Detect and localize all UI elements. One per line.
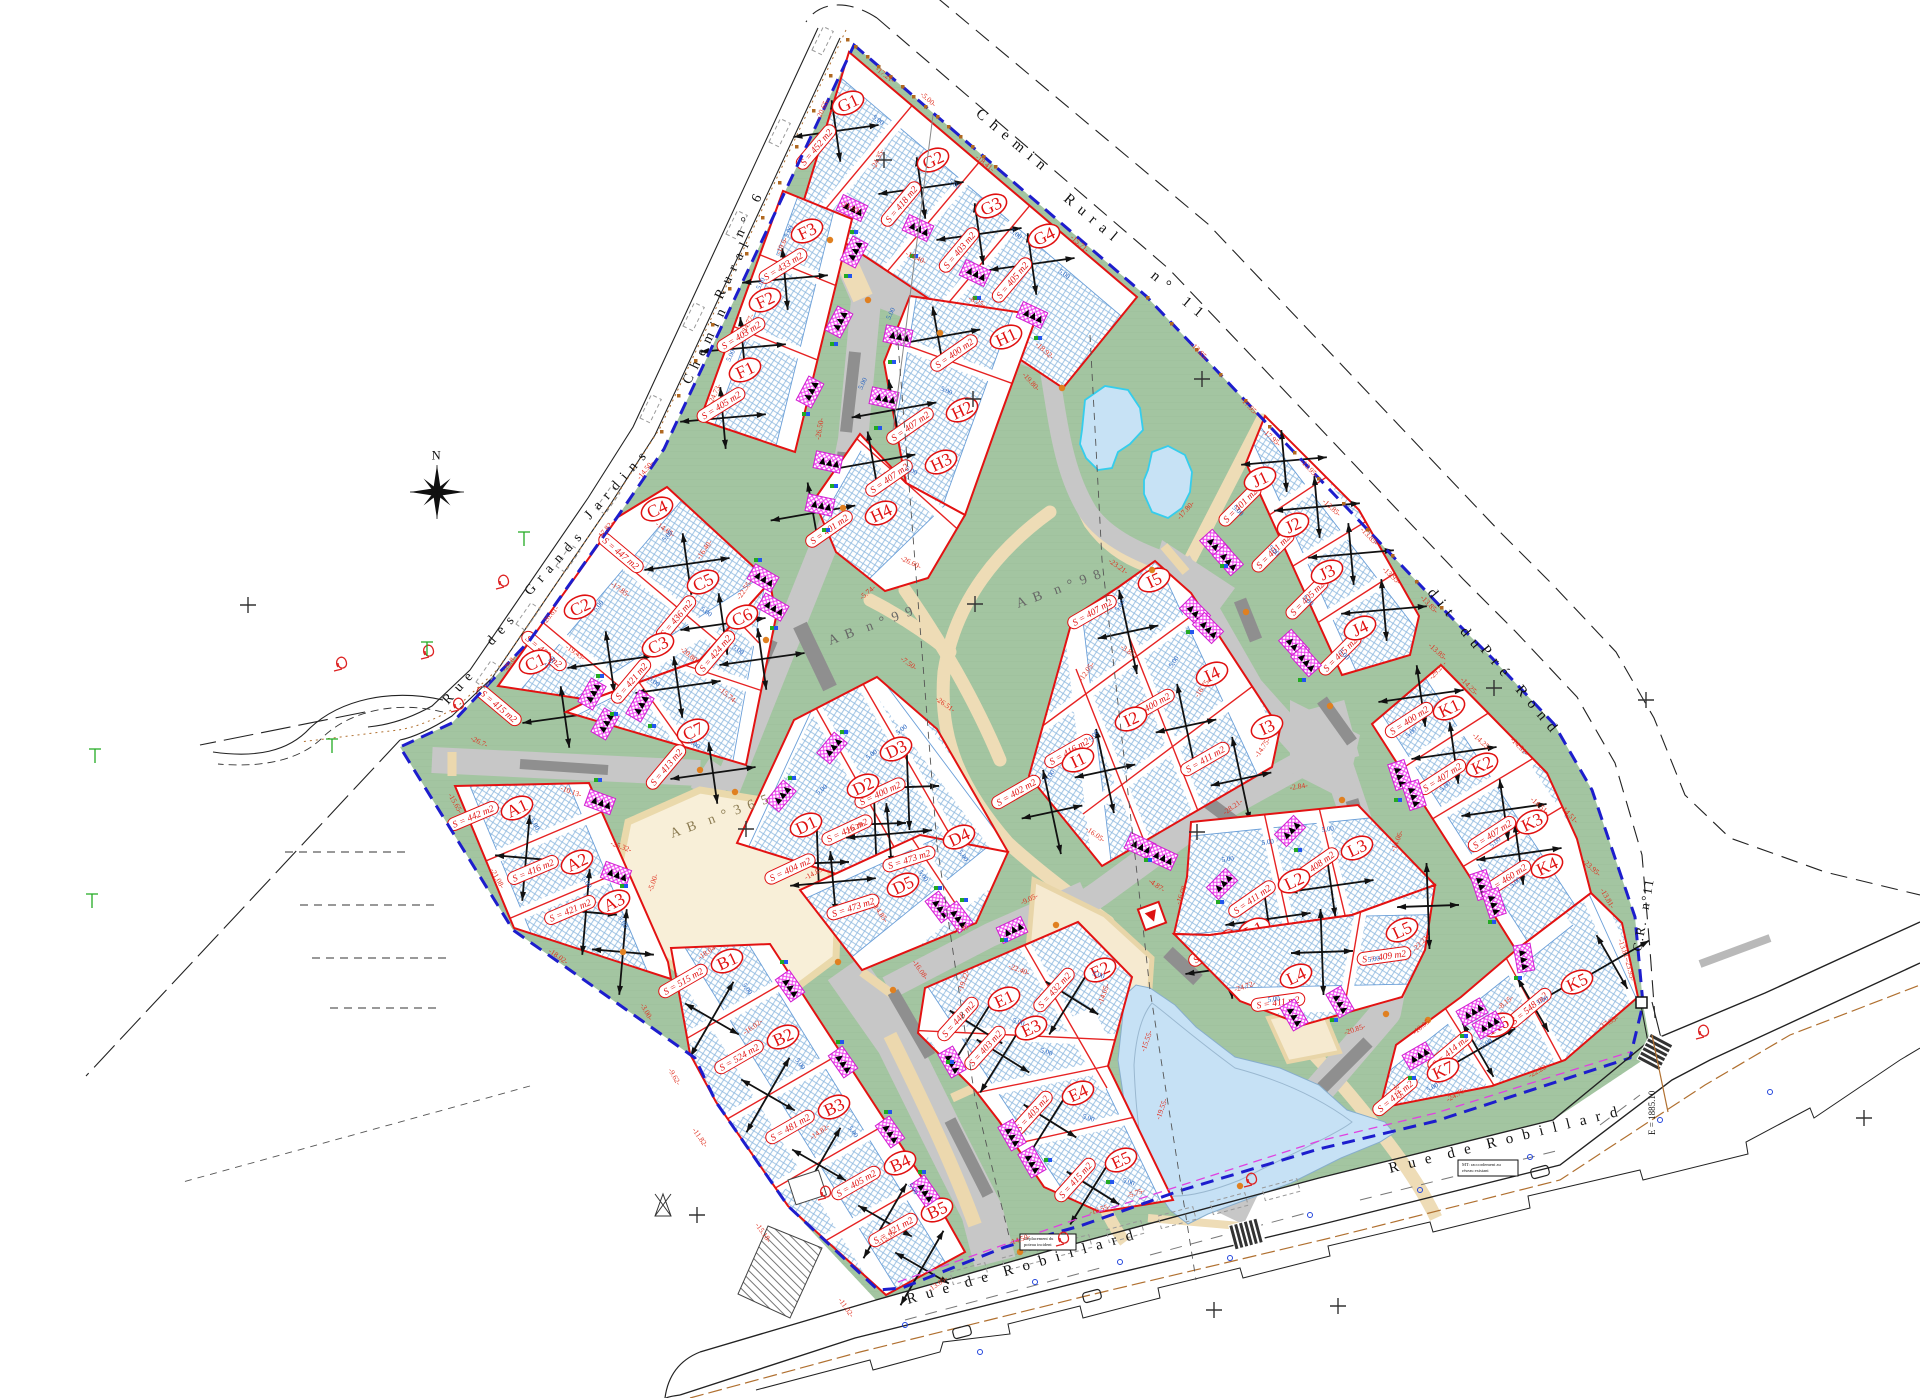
svg-text:réseau existant: réseau existant: [1462, 1168, 1489, 1173]
svg-text:E = 1885.10: E = 1885.10: [1647, 1090, 1657, 1135]
svg-text:poteau incident: poteau incident: [1024, 1242, 1052, 1247]
svg-text:MT: raccordement au: MT: raccordement au: [1462, 1162, 1502, 1167]
svg-text:N: N: [432, 449, 441, 463]
